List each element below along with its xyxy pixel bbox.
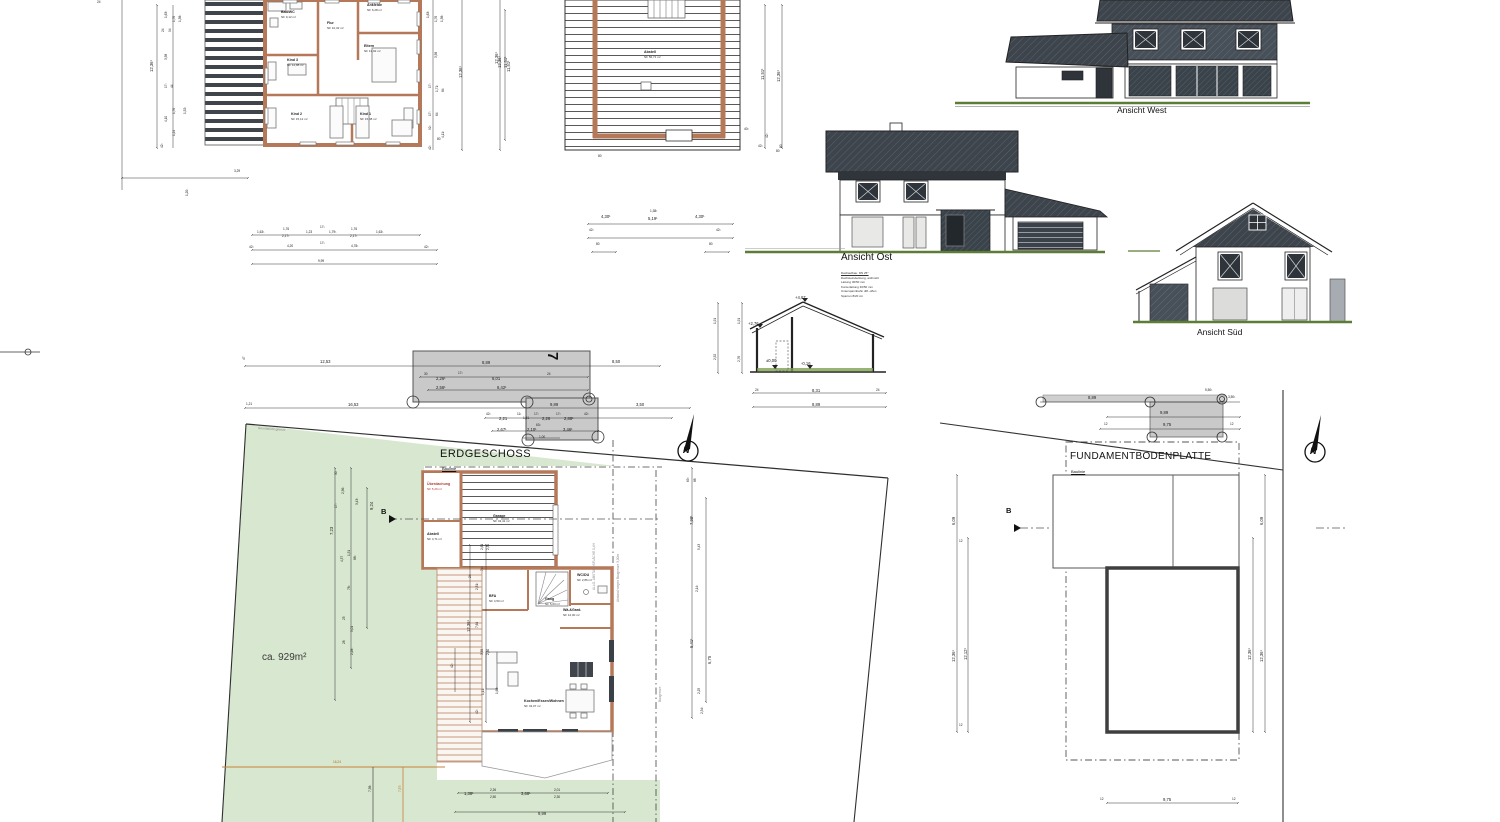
architectural-drawing-sheet: ERDGESCHOSS Baulinie FUNDAMENTBODENPLATT… [0,0,1500,822]
dim-label: 4,30¹ [695,215,705,219]
dim-label: 6,09 [1260,517,1264,525]
dim-label: 3,55 [481,649,484,655]
dim-label: 78¹ [348,585,351,590]
dim-label: 8,31 [812,389,820,393]
dim-label: 1,91 [714,318,717,324]
dim-label: 25 [343,616,346,620]
dim-label: 12,12¹ [964,648,968,660]
dim-label: 2,31¹ [476,583,479,590]
dim-label: 80 [780,144,783,148]
dim-label: 2,50 [490,796,496,799]
eg-plan-title: ERDGESCHOSS [440,449,531,460]
room-garage-area: NF 43,41 m² [493,520,510,523]
room-ankleide-area: NF 6,28 m² [367,9,382,12]
dim-label: 4,78¹ [351,245,358,248]
dim-label: 30 [424,373,428,376]
room-eltern-area: NF 13,92 m² [364,50,381,53]
dim-label: 1,21 [246,403,252,406]
dim-label: 12 [1232,798,1236,801]
dim-label: 2,52 [714,354,717,360]
dim-label: 3,50¹ [1228,396,1235,399]
dim-label: 12 [959,724,963,727]
ansicht-ost-elevation [745,123,1107,252]
dim-label: 1,51 [348,550,351,556]
plot-area-label: ca. 929m² [262,653,306,663]
dim-label: 4,20 [287,245,293,248]
level-ground: -0,16 [801,362,811,366]
ansicht-sued-elevation [1128,203,1352,322]
dim-label: 1,63¹ [376,231,383,234]
dim-label: 12,36¹ [1248,648,1252,660]
dim-label: 4,11¹ [442,131,445,138]
section-marker-b-site: B [381,508,386,516]
dim-label: 1,63¹ [165,11,168,18]
dim-label: 80 [598,155,602,158]
dim-label: 12,36¹ [1260,650,1264,662]
room-abstell-eg-area: NF 4,71 m² [427,538,442,541]
dim-label: 1,63¹ [257,231,264,234]
dim-label: 80 [709,243,713,246]
level-eave: +2,76 [748,322,759,326]
dg-floorplan [505,0,782,150]
dim-label: 9,89 [550,403,558,407]
north-arrow-letter-site: N [683,446,690,455]
dim-label: 1,38¹ [650,210,657,213]
dim-label: 1,76 [435,16,438,22]
dim-label: 3,58 [435,52,438,58]
dim-label: 8,50 [612,360,620,364]
dim-label: 24 [469,574,472,578]
room-kind2-area: NF 15,12 m² [291,118,308,121]
room-kind1-area: NF 15,08 m² [360,118,377,121]
dim-label: 12,36¹ [467,620,471,632]
dim-label: 7,38¹ [369,785,372,792]
dim-label: 12,36¹ [459,66,463,78]
site-plan [0,349,888,822]
dim-label: 2,56¹ [436,386,446,390]
dim-label: 12,53 [320,360,330,364]
dim-label: 11,51¹ [761,68,765,80]
dim-label: Abstand wegen Baugrenze 3,00m [617,554,620,602]
dim-label: 9,99 [538,812,546,816]
dim-label: 17¹ [320,242,325,245]
dim-label: 2,01 [554,789,560,792]
dim-label: 6,01 [492,377,500,381]
dim-label: 1,63¹ [427,11,430,18]
dim-label: 17¹ [534,413,539,416]
dim-label: 1,00 [539,436,545,439]
dim-label: 42¹ [584,413,589,416]
dim-label: 1,38¹ [441,15,444,22]
dim-label: 2,26 [542,417,550,421]
neighbor-house-number: 7 [545,352,560,360]
dim-label: 44 [171,84,174,88]
dim-label: Baugrenze [659,687,662,702]
dim-label: 2,30 [487,544,490,550]
eg-baulinie-label: Baulinie [442,467,456,471]
dim-label: 2,26 [490,789,496,792]
dim-label: 7,64 [476,622,479,628]
dim-label: 1,91 [738,318,741,324]
section-marker-b-foundation: B [1006,507,1011,515]
dim-label: 24 [876,389,880,392]
dim-label: 1,76 [173,16,176,22]
dim-label: 2,36¹ [342,487,345,494]
dim-label: 42¹ [429,145,432,150]
dim-label: 2,76 [738,356,741,362]
dim-label: 5,19¹ [648,217,658,221]
room-gang-area: NF 5,03 m² [545,603,560,606]
dim-label: 1,76 [283,228,289,231]
dim-label: 2,67¹ [497,428,507,432]
dim-label: 17¹ [429,83,432,88]
dim-label: 2,17¹ [282,235,289,238]
dim-label: 24 [547,373,551,376]
dim-label: 24 [162,28,165,32]
dim-label: 11¹ [517,413,521,416]
dim-label: 1,61 [523,417,529,420]
dim-label: 9,89 [1160,411,1168,415]
dim-label: 1,79¹ [329,231,336,234]
dim-label: 2,88¹ [564,417,574,421]
dim-label: 7,98¹ [690,515,694,525]
dim-label: 42¹ [451,663,454,668]
dim-label: 4,30¹ [601,215,611,219]
dim-label: 4,37 [341,556,344,562]
room-kochen-essen-wohnen-area: NF 43,07 m² [524,705,541,708]
dim-label: 42¹ [424,246,429,249]
dim-label: 3,43¹ [356,498,359,505]
dim-label: 63¹ [536,424,541,427]
north-arrow-letter-foundation: N [1310,447,1317,456]
building-section [718,298,886,407]
dim-label: 3,68¹ [521,792,531,796]
dim-label: 1,20¹ [186,189,189,196]
dim-label: 80 [776,150,780,153]
dim-label: 80 [437,138,441,141]
dim-label: 7,37¹ [399,785,402,792]
dim-label: 2,28¹ [351,648,354,655]
level-floor: ±0,00 [766,359,776,363]
room-wc-du-area: NF 2,86 m² [577,579,592,582]
dim-label: 16,53 [348,403,358,407]
dim-label: 5,43 [698,544,701,550]
dim-label: 92¹ [429,125,432,130]
dim-label: 42¹ [589,229,594,232]
room-bad-wc-area: NF 9,12 m² [281,16,296,19]
dim-label: 17¹ [320,226,325,229]
roof-spec-text: Dachaufbau: DN 25° Dachsteindeckung, ant… [841,271,911,298]
elevation-ost-title: Ansicht Ost [841,253,892,263]
dim-label: 6,42¹ [497,386,507,390]
dim-label: 17¹ [458,372,463,375]
level-ridge: +4,67 [795,296,806,300]
dim-label: 7,23 [330,527,334,535]
dim-label: 42¹ [486,413,491,416]
dim-label: 16,24 [333,761,341,764]
dim-label: 42¹ [716,229,721,232]
dim-label: 8,89 [482,361,490,365]
dim-label: 12 [959,540,963,543]
dim-label: 1,38¹ [179,15,182,22]
dim-label: 4,10 [165,116,168,122]
dim-label: 2,25 [698,688,701,694]
dim-label: 9,75 [1163,423,1171,427]
dim-label: 64 [436,112,439,116]
dim-label: 2,30 [554,796,560,799]
room-wae-gard-area: NF 12,00 m² [563,614,580,617]
dim-label: ALLG. ABSTANDSFLÄCHE 0,4H [593,543,596,590]
dim-label: 9,99 [318,260,324,263]
ansicht-west-elevation [955,0,1310,107]
dim-label: 94 [169,28,172,32]
foundation-baulinie-label: Baulinie [1071,470,1085,474]
dim-label: 12 [1230,423,1234,426]
dim-label: 42¹ [766,133,769,138]
dim-label: 1,23 [306,231,312,234]
dim-label: 42¹ [161,143,164,148]
elevation-sued-title: Ansicht Süd [1197,328,1242,337]
dim-label: 3,58 [165,54,168,60]
dim-label: 5,01 [351,626,354,632]
dim-label: 28 [343,640,346,644]
dim-label: 3,29 [234,170,240,173]
dim-label: 12,36¹ [498,56,502,68]
dim-label: 2,17¹ [350,235,357,238]
dim-label: 1,68¹ [496,687,499,694]
dim-label: 24 [755,389,759,392]
dim-label: 6,09 [952,517,956,525]
dim-label: 3,46¹ [563,428,573,432]
dim-label: 2,61 [481,544,484,550]
dim-label: 1,24 [173,130,176,136]
room-abstell-dg-area: NF 56,71 m² [644,56,661,59]
dim-label: 42¹ [476,709,479,714]
dim-label: 2,34¹ [701,707,704,714]
dim-label: 80 [596,243,600,246]
dim-label: 1,11¹ [482,688,485,695]
dim-label: 30 [335,471,338,475]
dim-label: 9,75 [1163,798,1171,802]
dim-label: 69¹ [687,477,690,482]
dim-label: 8,89 [1088,396,1096,400]
dim-label: 74¹ [481,566,484,571]
room-kind3-area: NF 12,88 m² [287,64,304,67]
dim-label: 24 [97,1,101,4]
room-ueberdachung-area: NF 5,29 m² [427,488,442,491]
dim-label: 1,71¹ [436,85,439,92]
foundation-plan-title: FUNDAMENTBODENPLATTE [1070,452,1211,462]
dim-label: 2,10¹ [527,428,537,432]
dim-label: 5,50¹ [1205,389,1212,392]
dim-label: 1,52¹ [184,107,187,114]
dim-label: 17¹ [335,503,338,508]
dim-label: 2,26¹ [436,377,446,381]
room-flur-area: NF 10,32 m² [327,27,344,30]
dim-label: 5,41¹ [690,638,694,648]
dim-label: 1,76 [351,228,357,231]
dim-label: 17¹ [556,413,561,416]
dim-label: 40¹ [744,128,749,131]
dim-label: 42¹ [249,246,254,249]
dim-label: 1,76 [173,108,176,114]
dim-label: 12,36¹ [777,70,781,82]
ost-dimension-chains [588,224,733,252]
dim-label: 84 [442,88,445,92]
dim-label: 17¹ [165,83,168,88]
dim-label: 12 [1104,423,1108,426]
dim-label: 12,36¹ [150,60,154,72]
dim-label: 11,51¹ [507,60,511,72]
dim-label: 2,14¹ [696,585,699,592]
dim-label: 6,75 [708,656,712,664]
dim-label: 1,38¹ [464,792,474,796]
dim-label: 47 [243,356,246,360]
elevation-west-title: Ansicht West [1117,106,1166,115]
dim-label: 8,89 [812,403,820,407]
dim-label: 42¹ [758,145,763,148]
dim-label: 12,36¹ [952,650,956,662]
room-bfa-area: NF 4,50 m² [489,600,504,603]
dim-label: 88¹ [354,555,357,560]
dim-label: 88 [694,478,697,482]
dim-label: 2,21 [499,417,507,421]
spec-line: Sparren 8/20 cm [841,294,911,299]
dim-label: 12 [1100,798,1104,801]
dim-label: 3,50 [636,403,644,407]
drawing-linework [0,0,1500,822]
dim-label: 9,24 [370,502,374,510]
dim-label: 17¹ [429,111,432,116]
dim-label: 2,30 [487,649,490,655]
